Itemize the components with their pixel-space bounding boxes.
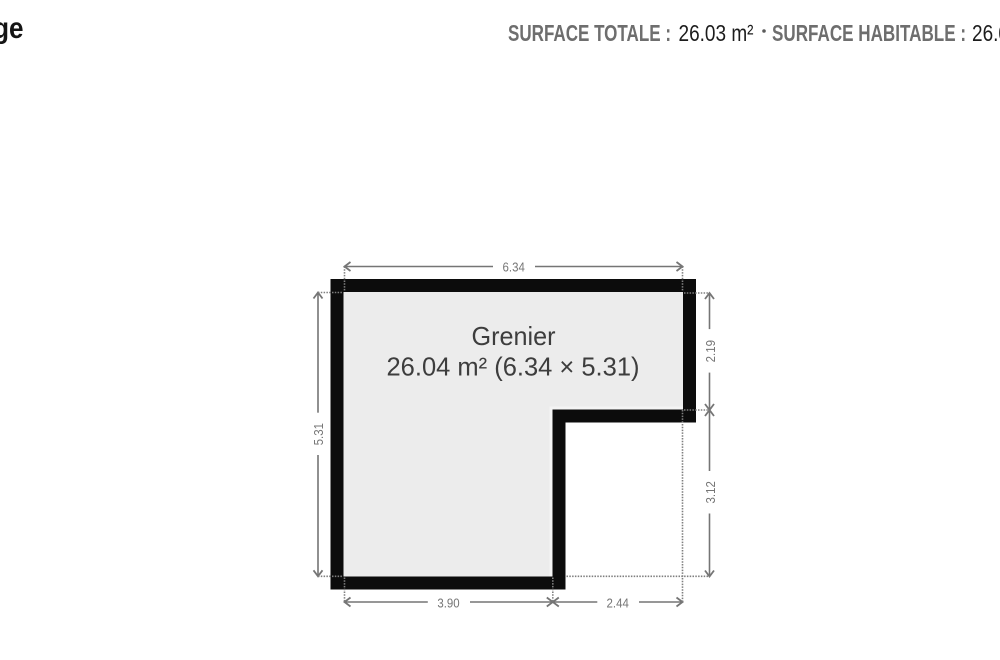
svg-text:5.31: 5.31 xyxy=(311,423,326,445)
svg-text:SURFACE HABITABLE :: SURFACE HABITABLE : xyxy=(772,20,966,46)
svg-text:SURFACE TOTALE :: SURFACE TOTALE : xyxy=(508,20,671,46)
svg-text:26.03 m²: 26.03 m² xyxy=(679,20,754,46)
svg-text:2.19: 2.19 xyxy=(703,340,718,362)
svg-text:3.90: 3.90 xyxy=(437,595,459,610)
svg-text:6.34: 6.34 xyxy=(503,259,525,274)
svg-text:Étage: Étage xyxy=(0,11,24,45)
svg-text:Grenier: Grenier xyxy=(472,321,556,351)
svg-text:3.12: 3.12 xyxy=(703,481,718,503)
svg-text:26.04 m² (6.34 × 5.31): 26.04 m² (6.34 × 5.31) xyxy=(387,352,640,382)
svg-text:26.03 m²: 26.03 m² xyxy=(972,20,1000,46)
svg-text:2.44: 2.44 xyxy=(607,595,629,610)
